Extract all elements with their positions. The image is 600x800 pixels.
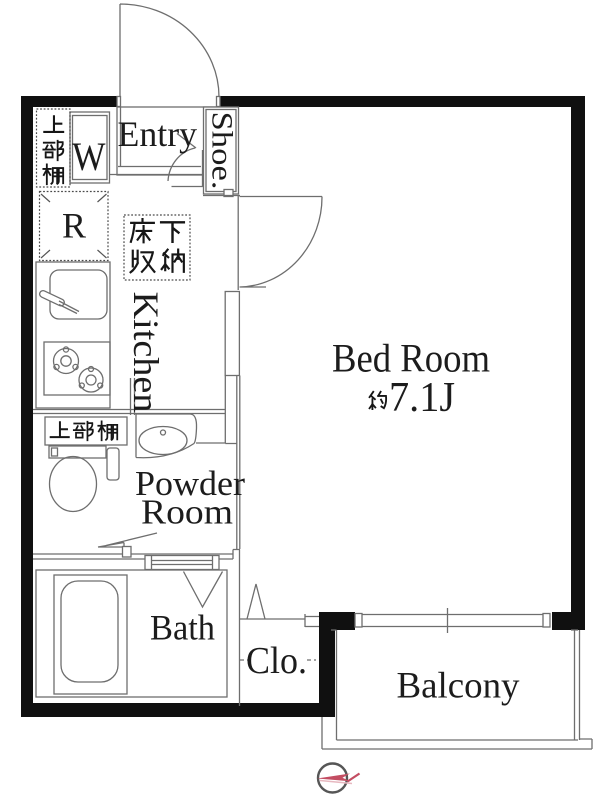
svg-text:Kitchen: Kitchen xyxy=(126,292,166,413)
svg-text:7.1J: 7.1J xyxy=(389,375,455,421)
svg-text:Shoe.: Shoe. xyxy=(206,112,239,190)
svg-text:W: W xyxy=(72,134,106,179)
svg-text:Bed Room: Bed Room xyxy=(332,336,490,381)
svg-text:R: R xyxy=(62,206,86,246)
svg-text:Room: Room xyxy=(141,493,233,532)
svg-text:Clo.: Clo. xyxy=(246,640,307,682)
svg-text:Bath: Bath xyxy=(150,608,215,648)
svg-text:Entry: Entry xyxy=(118,114,198,154)
svg-text:Balcony: Balcony xyxy=(397,666,520,707)
